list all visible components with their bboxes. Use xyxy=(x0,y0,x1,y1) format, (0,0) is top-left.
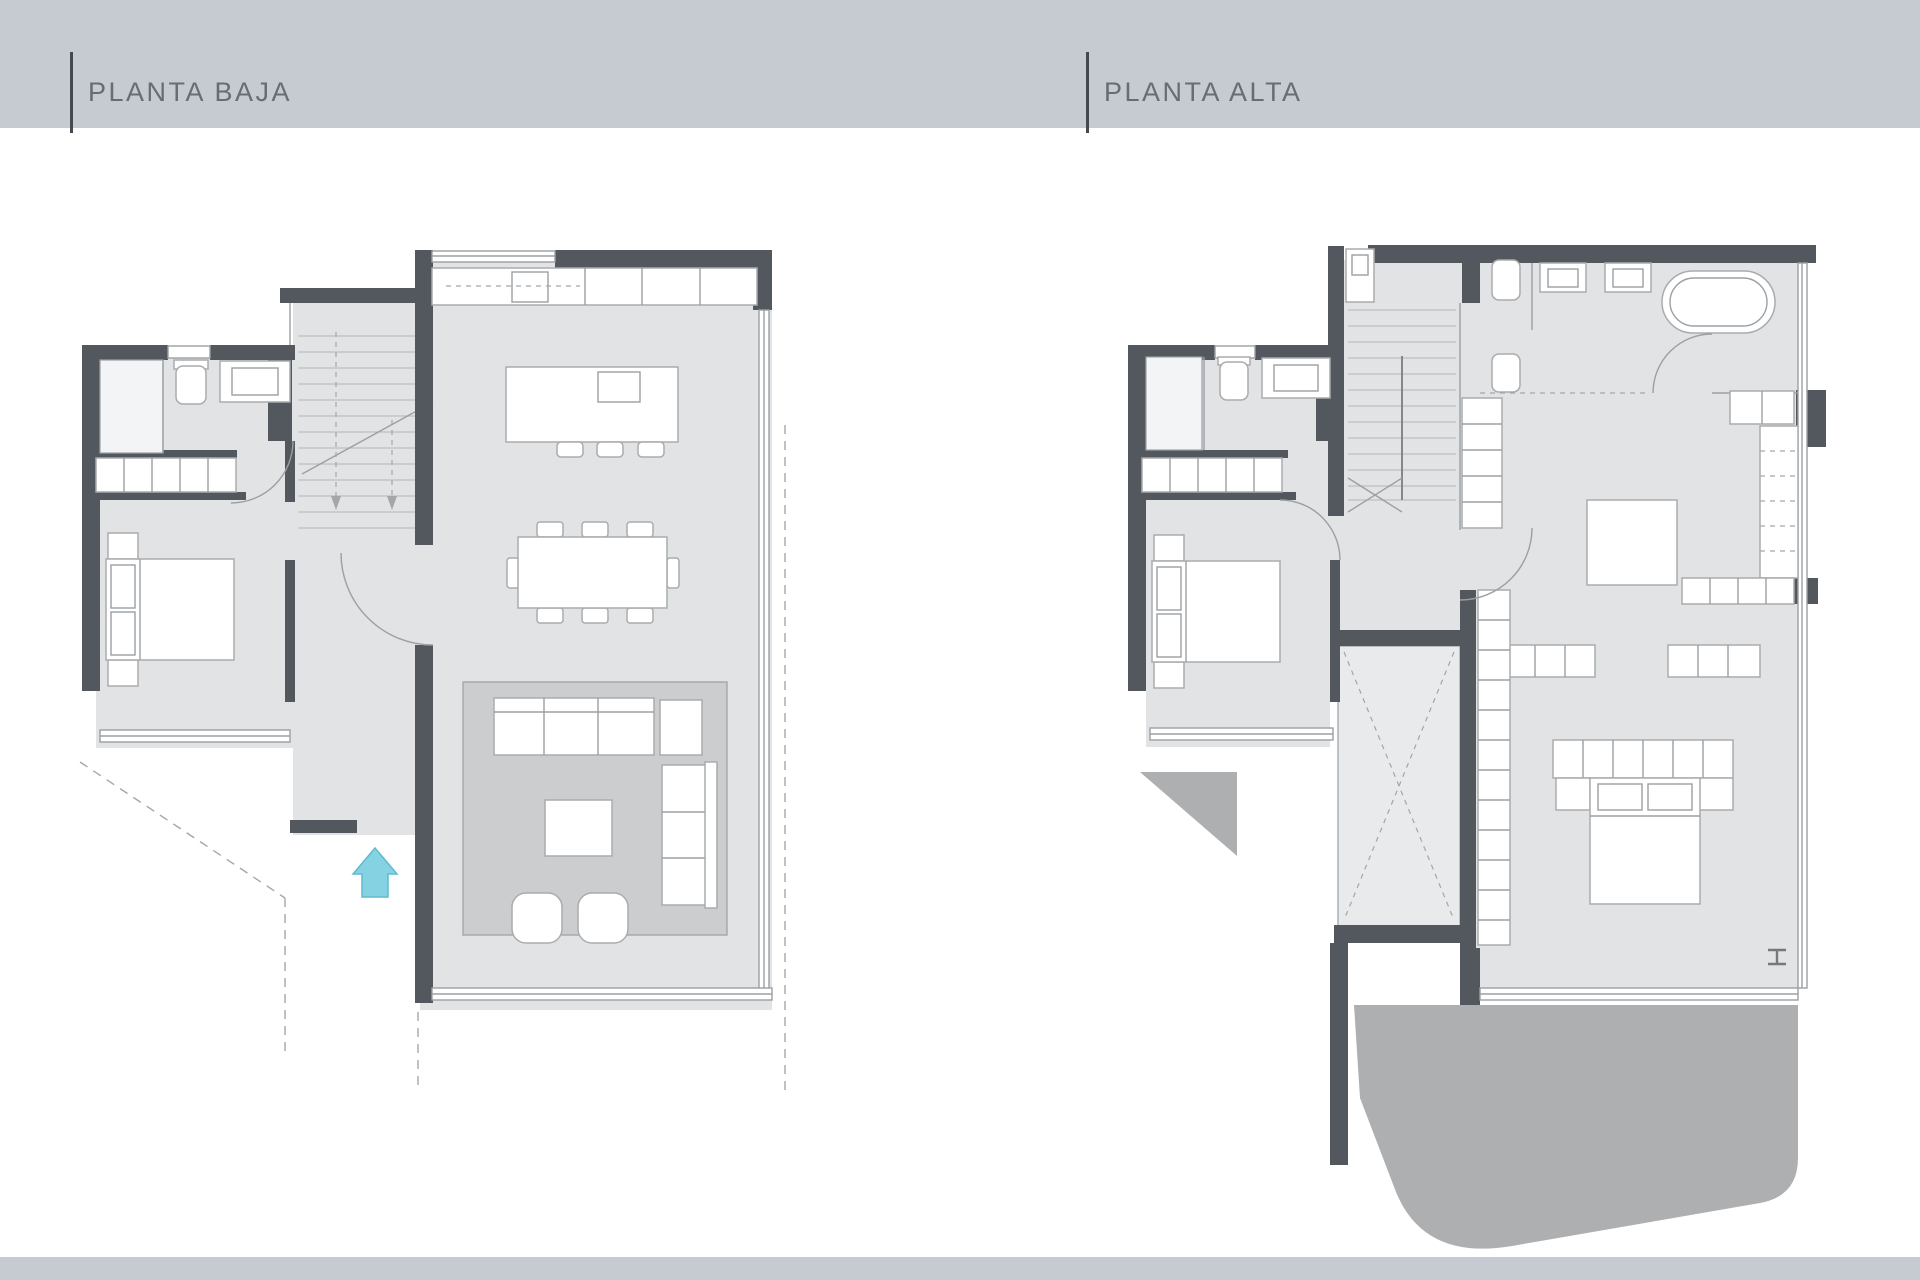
nightstand xyxy=(1699,778,1733,810)
toilet-icon xyxy=(176,366,206,404)
nightstand xyxy=(108,533,138,559)
shower xyxy=(1146,357,1202,450)
pa-void-over-living xyxy=(1338,646,1460,926)
cabinet-row xyxy=(1668,645,1760,677)
pa-duct-closet xyxy=(1346,249,1374,302)
pouf xyxy=(512,893,562,943)
bed xyxy=(1152,561,1280,662)
bar-stool xyxy=(597,442,623,457)
dining-chair xyxy=(627,522,653,537)
dining-table xyxy=(518,537,667,608)
nightstand xyxy=(1154,535,1184,561)
dining-chair xyxy=(667,558,679,588)
entrance-arrow-icon xyxy=(353,848,397,897)
pb-living xyxy=(463,682,727,943)
bar-stool xyxy=(557,442,583,457)
plan-planta-baja xyxy=(80,250,785,1090)
floor-plan-sheet: PLANTA BAJA PLANTA ALTA xyxy=(0,0,1920,1280)
pb-wardrobe xyxy=(96,458,236,492)
bidet-icon xyxy=(1492,354,1520,392)
pouf xyxy=(578,893,628,943)
sink xyxy=(220,361,290,402)
chaise-back xyxy=(705,762,717,908)
toilet-icon xyxy=(1220,362,1248,400)
coffee-table xyxy=(545,800,612,856)
shower xyxy=(100,360,163,453)
walk-in-wardrobe xyxy=(1478,590,1510,945)
sink xyxy=(1262,358,1330,398)
nightstand xyxy=(108,660,138,686)
toilet-icon xyxy=(1492,260,1520,300)
plan-planta-alta xyxy=(1128,245,1826,1249)
pb-dining xyxy=(507,522,679,623)
nightstand xyxy=(1556,778,1590,810)
corridor-wardrobe xyxy=(1462,398,1502,528)
dining-chair xyxy=(582,522,608,537)
nightstand xyxy=(1154,662,1184,688)
wardrobe xyxy=(1760,426,1798,578)
terrace-main xyxy=(1354,1005,1798,1249)
bathtub-icon xyxy=(1662,271,1775,333)
sofa xyxy=(494,698,654,755)
dressing-table xyxy=(1587,500,1677,585)
dining-chair xyxy=(537,522,563,537)
pa-wardrobe2 xyxy=(1142,458,1282,492)
dining-chair xyxy=(537,608,563,623)
bar-stool xyxy=(638,442,664,457)
cabinet-row xyxy=(1505,645,1595,677)
terrace-triangle xyxy=(1140,772,1237,856)
kitchen-island xyxy=(506,367,678,442)
dining-chair xyxy=(582,608,608,623)
bed xyxy=(1590,778,1700,904)
dining-chair xyxy=(627,608,653,623)
dining-chair xyxy=(507,558,519,588)
armchair xyxy=(660,700,702,755)
bed xyxy=(106,559,234,660)
floor-plans-drawing xyxy=(0,0,1920,1280)
